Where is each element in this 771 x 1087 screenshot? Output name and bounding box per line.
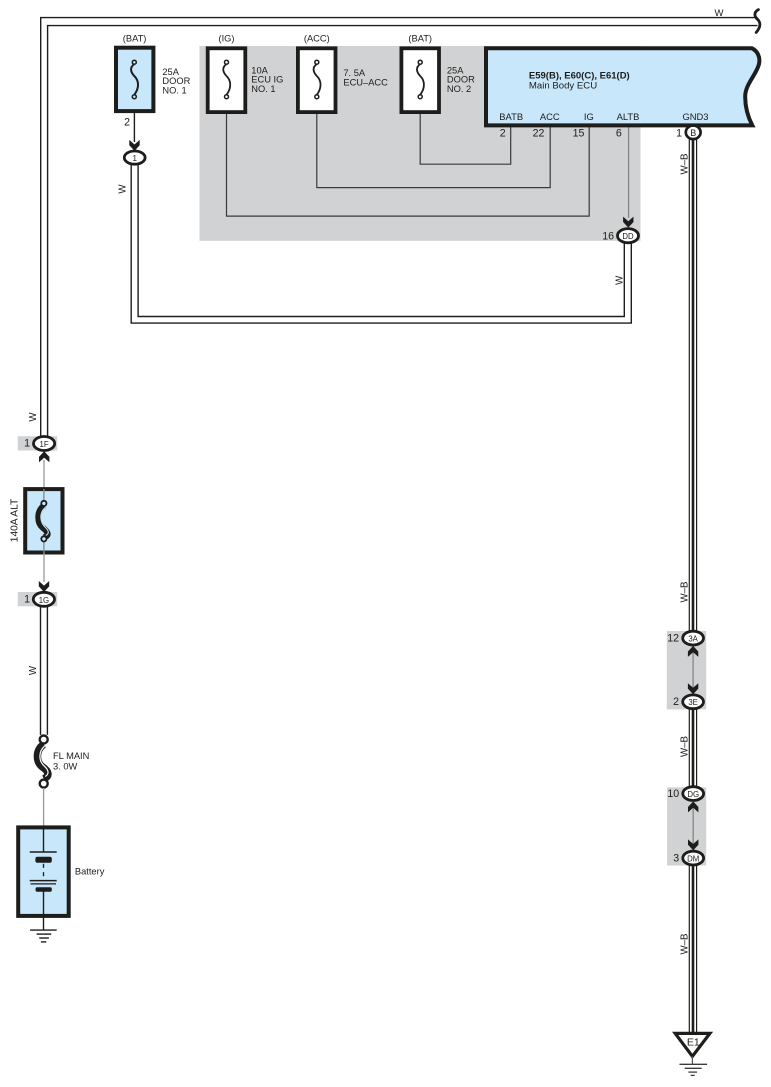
- svg-text:ACC: ACC: [540, 111, 560, 122]
- svg-text:2: 2: [673, 696, 679, 708]
- svg-text:ALTB: ALTB: [617, 111, 640, 122]
- svg-text:(BAT): (BAT): [408, 34, 432, 44]
- svg-text:(IG): (IG): [218, 34, 234, 44]
- svg-text:FL MAIN: FL MAIN: [53, 751, 89, 761]
- svg-text:1: 1: [676, 127, 682, 139]
- svg-text:NO. 1: NO. 1: [251, 84, 275, 94]
- svg-text:22: 22: [533, 128, 545, 140]
- svg-text:1: 1: [132, 154, 137, 163]
- svg-text:1: 1: [24, 437, 30, 449]
- svg-text:2: 2: [124, 116, 130, 128]
- svg-text:Battery: Battery: [75, 867, 105, 877]
- svg-text:6: 6: [616, 128, 622, 140]
- svg-text:10: 10: [667, 788, 679, 800]
- svg-text:3: 3: [673, 853, 679, 865]
- svg-text:W–B: W–B: [680, 582, 691, 603]
- svg-text:W: W: [28, 412, 39, 422]
- svg-text:W–B: W–B: [680, 736, 691, 757]
- svg-text:(BAT): (BAT): [123, 34, 147, 44]
- svg-text:IG: IG: [584, 111, 594, 122]
- svg-text:1F: 1F: [40, 440, 49, 449]
- svg-text:3A: 3A: [688, 635, 698, 644]
- svg-text:3. 0W: 3. 0W: [53, 762, 78, 772]
- svg-text:NO. 2: NO. 2: [447, 84, 471, 94]
- svg-text:DD: DD: [622, 232, 634, 241]
- svg-text:GND3: GND3: [682, 111, 708, 122]
- svg-text:16: 16: [602, 231, 614, 243]
- svg-text:(ACC): (ACC): [304, 34, 330, 44]
- svg-text:ECU–ACC: ECU–ACC: [343, 77, 388, 87]
- svg-text:2: 2: [500, 128, 506, 140]
- svg-text:E1: E1: [687, 1037, 700, 1049]
- svg-text:15: 15: [573, 128, 585, 140]
- svg-text:DM: DM: [687, 855, 699, 864]
- svg-text:DG: DG: [687, 790, 699, 799]
- svg-text:1: 1: [24, 594, 30, 606]
- svg-text:W–B: W–B: [680, 934, 691, 955]
- svg-text:W: W: [715, 8, 724, 19]
- svg-text:140A ALT: 140A ALT: [10, 499, 21, 542]
- svg-text:W: W: [614, 275, 625, 285]
- svg-text:W: W: [117, 184, 128, 194]
- svg-text:BATB: BATB: [499, 111, 523, 122]
- svg-text:Main Body ECU: Main Body ECU: [529, 80, 597, 91]
- svg-text:NO. 1: NO. 1: [162, 86, 186, 96]
- svg-text:W: W: [28, 665, 39, 675]
- svg-text:12: 12: [667, 633, 679, 645]
- svg-text:B: B: [690, 128, 696, 138]
- svg-text:1G: 1G: [39, 596, 49, 605]
- svg-text:W–B: W–B: [680, 154, 691, 175]
- svg-text:3E: 3E: [688, 698, 698, 707]
